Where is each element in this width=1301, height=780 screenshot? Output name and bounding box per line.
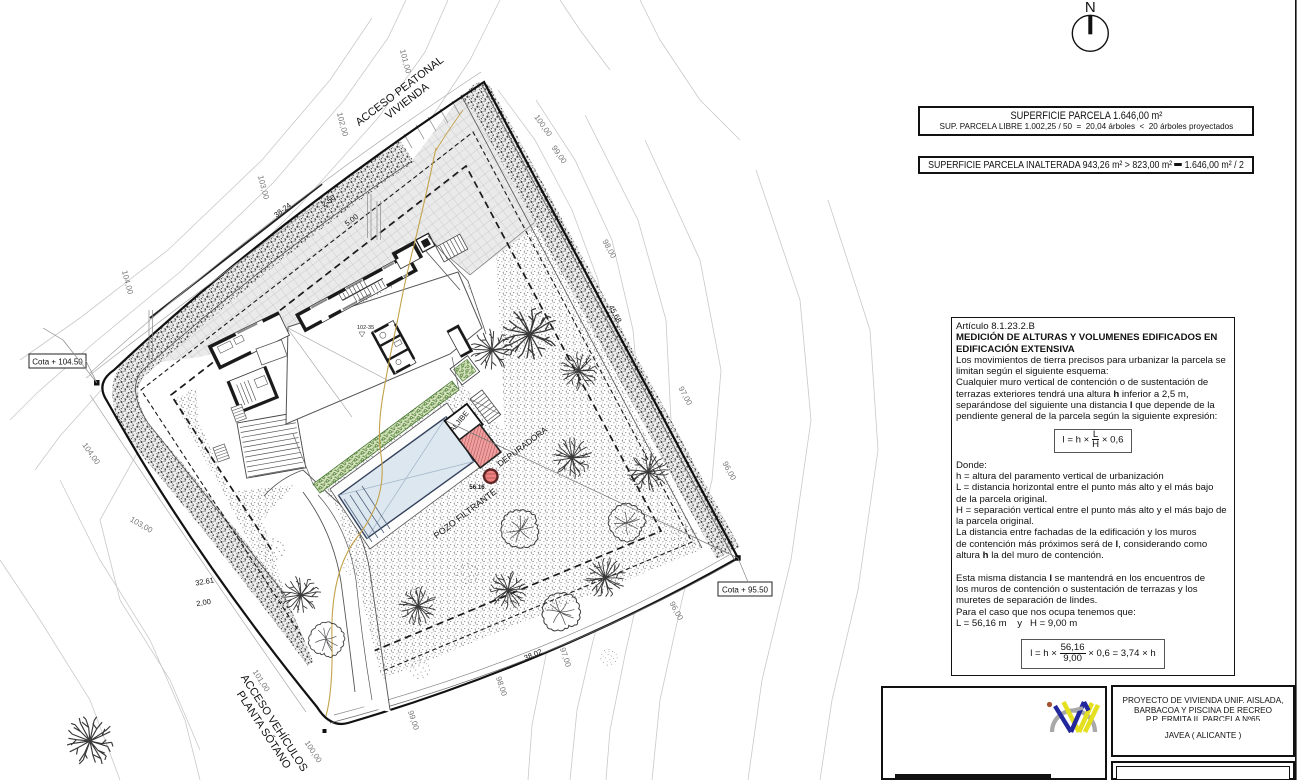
svg-text:102,00: 102,00 (335, 111, 350, 137)
svg-text:N: N (1085, 0, 1096, 16)
svg-text:97,00: 97,00 (677, 385, 695, 407)
svg-text:97,00: 97,00 (558, 646, 573, 668)
svg-text:Cota + 95.50: Cota + 95.50 (722, 586, 769, 595)
svg-text:99,00: 99,00 (550, 144, 569, 166)
svg-text:98,00: 98,00 (601, 238, 619, 260)
svg-text:2,00: 2,00 (196, 597, 212, 608)
svg-text:104,00: 104,00 (80, 441, 102, 467)
svg-text:100,00: 100,00 (532, 113, 554, 139)
svg-text:56.16: 56.16 (469, 484, 485, 491)
svg-text:101,00: 101,00 (398, 48, 413, 74)
svg-text:32.61: 32.61 (195, 575, 215, 587)
svg-text:96,00: 96,00 (668, 600, 686, 622)
svg-text:99,00: 99,00 (406, 709, 421, 731)
svg-text:103,00: 103,00 (128, 515, 154, 535)
svg-text:38-24: 38-24 (272, 201, 293, 220)
svg-text:Cota + 104.50: Cota + 104.50 (32, 358, 83, 367)
svg-text:96,00: 96,00 (721, 460, 739, 482)
svg-text:102-35: 102-35 (357, 325, 374, 331)
svg-text:98,00: 98,00 (494, 675, 509, 697)
svg-text:104,00: 104,00 (120, 269, 135, 295)
